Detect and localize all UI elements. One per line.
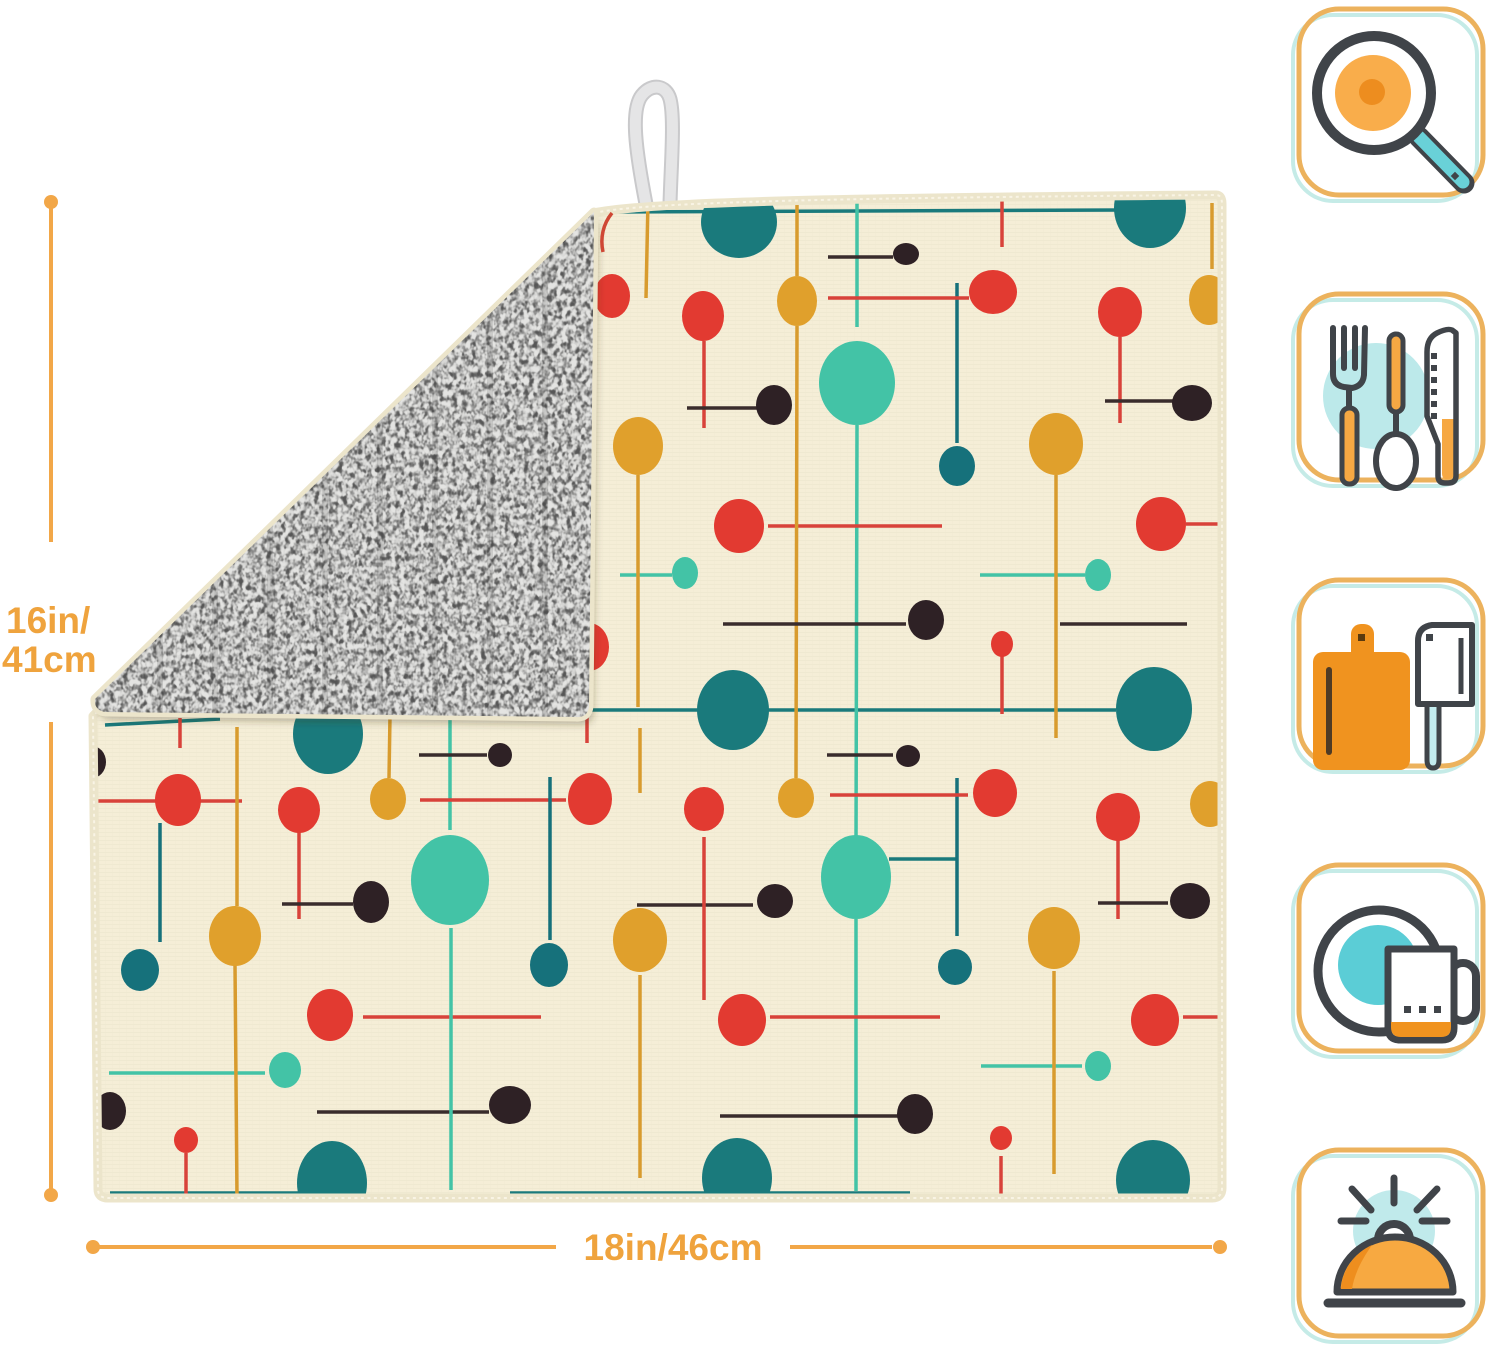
svg-text:41cm: 41cm [2,639,97,680]
svg-text:16in/: 16in/ [6,600,90,641]
svg-text:18in/46cm: 18in/46cm [584,1227,763,1268]
